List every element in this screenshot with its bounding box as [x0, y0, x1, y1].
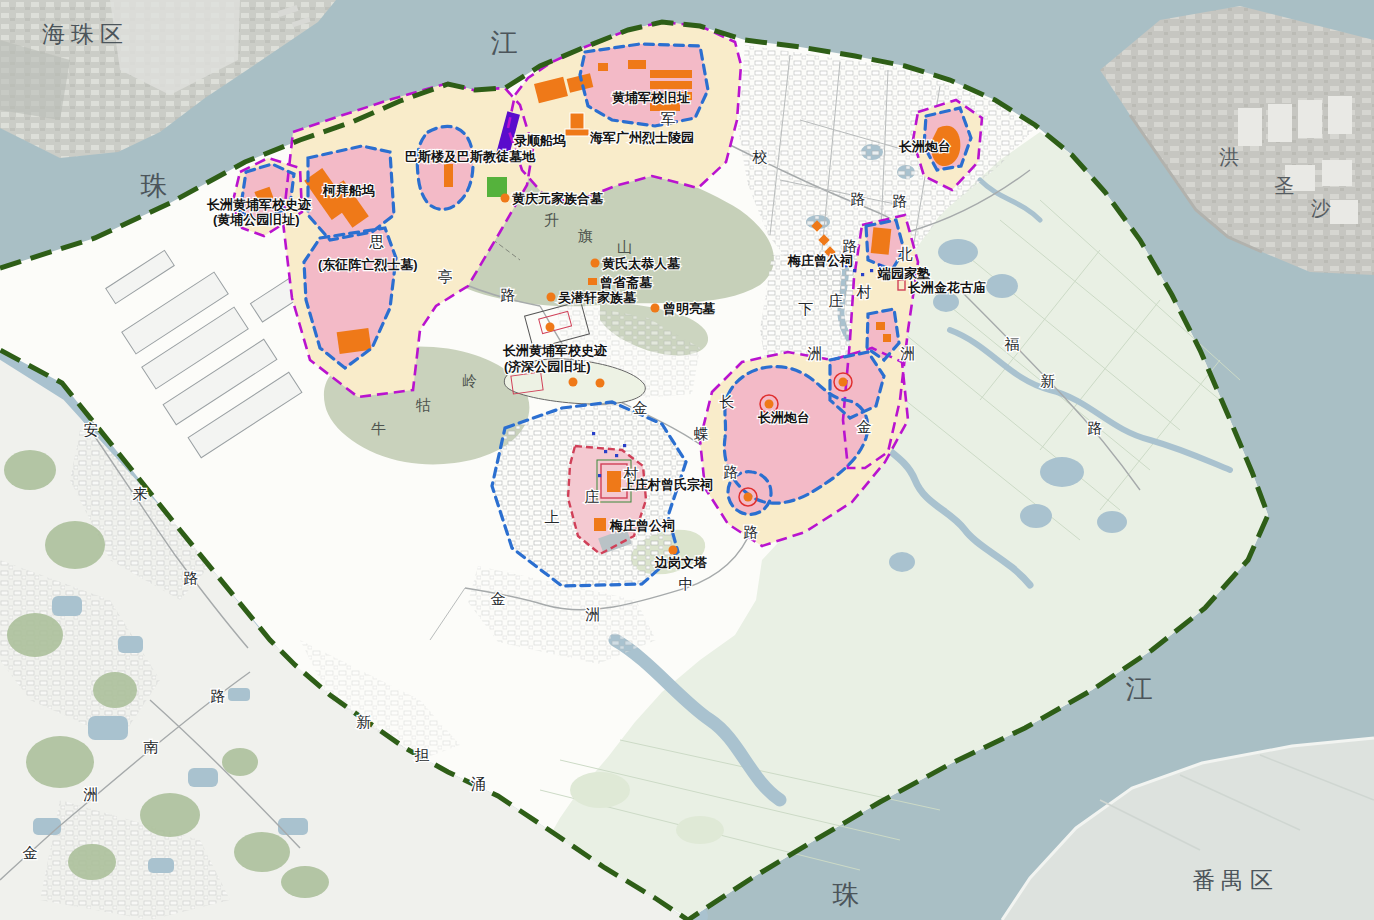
- road-label: 金: [23, 844, 38, 861]
- road-label: 路: [724, 463, 739, 480]
- road-label: 金: [491, 590, 506, 607]
- site-label: 梅庄曾公祠: [787, 253, 853, 268]
- site-label: 长洲金花古庙: [907, 280, 986, 295]
- road-label: 庄: [585, 488, 600, 505]
- road-label: 洲: [901, 344, 916, 361]
- road-label: 长: [720, 393, 735, 410]
- site-label: 黄埔军校旧址: [611, 90, 690, 105]
- water-label: 江: [491, 28, 520, 58]
- blue-feature-dot: [853, 269, 856, 272]
- heritage-site-dot: [569, 378, 578, 387]
- site-label: 长洲炮台: [898, 139, 951, 154]
- road-label: 亭: [438, 268, 453, 285]
- site-label: 黄氏太恭人墓: [601, 256, 681, 271]
- road-label: 金: [857, 418, 872, 435]
- district-label: 海珠区: [42, 21, 129, 47]
- site-label: 柯拜船坞: [322, 183, 375, 198]
- site-label: 录顺船坞: [513, 133, 566, 148]
- water-label: 珠: [141, 171, 170, 201]
- road-label: 北: [898, 245, 913, 262]
- road-label: 村: [856, 283, 872, 300]
- shoal-label: 沙: [1311, 197, 1331, 219]
- water-label: 江: [1126, 674, 1155, 704]
- road-label: 新: [1041, 372, 1056, 389]
- road-label: 中: [679, 575, 694, 592]
- road-label: 安: [84, 421, 99, 438]
- blue-feature-dot: [615, 454, 618, 457]
- road-label: 福: [1005, 335, 1020, 352]
- heritage-site-dot: [547, 293, 556, 302]
- hill-label: 牛: [371, 420, 387, 437]
- heritage-site-dot: [596, 379, 605, 388]
- road-label: 洲: [586, 605, 601, 622]
- road-label: 洲: [84, 785, 99, 802]
- heritage-site-dot: [591, 259, 600, 268]
- hill-label: 山: [617, 238, 633, 255]
- site-label: 巴斯楼及巴斯教徒墓地: [405, 149, 536, 164]
- site-label: 上庄村曾氏宗祠: [622, 477, 713, 492]
- hill-label: 岭: [462, 372, 478, 389]
- road-label: 校: [752, 148, 768, 165]
- site-label: 长洲黄埔军校史迹: [502, 343, 607, 358]
- site-label: 长洲炮台: [757, 410, 810, 425]
- road-label: 南: [144, 738, 159, 755]
- heritage-site-dot: [669, 546, 678, 555]
- site-label: (东征阵亡烈士墓): [318, 257, 418, 272]
- road-label: 庄: [829, 292, 844, 309]
- road-label: 新: [357, 713, 372, 730]
- road-label: 担: [415, 746, 430, 763]
- road-label: 涌: [471, 775, 486, 792]
- road-label: 思: [369, 233, 385, 250]
- site-label: 曾省斋墓: [600, 275, 653, 290]
- site-label: 黄庆元家族合墓: [511, 191, 604, 206]
- site-label: 边岗文塔: [654, 555, 708, 570]
- heritage-site-dot: [744, 493, 753, 502]
- site-label: 海军广州烈士陵园: [589, 130, 694, 145]
- shoal-label: 洪: [1219, 146, 1239, 168]
- road-label: 金: [633, 399, 648, 416]
- road-label: 路: [501, 286, 516, 303]
- map-canvas: 江珠江珠海珠区番禺区洪圣沙升旗山牛牯岭军校路路路北洲金下庄村洲思亭路长金蝶路路上…: [0, 0, 1374, 920]
- blue-feature-dot: [592, 432, 595, 435]
- road-label: 军: [661, 110, 676, 127]
- site-label: 长洲黄埔军校史迹: [206, 197, 311, 212]
- heritage-site-dot: [765, 400, 774, 409]
- site-label: (黄埔公园旧址): [213, 212, 300, 227]
- road-label: 路: [211, 687, 226, 704]
- heritage-site-dot: [839, 378, 848, 387]
- hill-label: 升: [544, 211, 560, 228]
- blue-feature-dot: [623, 444, 626, 447]
- heritage-site-dot: [546, 323, 555, 332]
- hill-label: 旗: [578, 227, 594, 244]
- site-label: 梅庄曾公祠: [609, 518, 675, 533]
- blue-feature-dot: [870, 269, 873, 272]
- heritage-site-square: [588, 278, 597, 285]
- road-label: 洲: [808, 344, 823, 361]
- road-label: 路: [184, 569, 199, 586]
- site-label: 端园家塾: [877, 266, 930, 281]
- heritage-site-dot: [651, 304, 660, 313]
- site-label: 吴潜轩家族墓: [557, 290, 637, 305]
- blue-feature-dot: [598, 474, 601, 477]
- shoal-label: 圣: [1274, 175, 1294, 197]
- blue-feature-dot: [604, 450, 607, 453]
- site-label: 曾明亮墓: [663, 301, 716, 316]
- road-label: 上: [545, 508, 560, 525]
- road-label: 蝶: [694, 425, 709, 442]
- road-label: 路: [851, 190, 866, 207]
- road-label: 路: [1088, 419, 1103, 436]
- road-label: 来: [133, 485, 148, 502]
- road-label: 路: [843, 237, 858, 254]
- road-label: 路: [744, 523, 759, 540]
- district-label: 番禺区: [1192, 867, 1279, 893]
- site-label: (济深公园旧址): [504, 359, 591, 374]
- planning-map: 江珠江珠海珠区番禺区洪圣沙升旗山牛牯岭军校路路路北洲金下庄村洲思亭路长金蝶路路上…: [0, 0, 1374, 920]
- water-label: 珠: [833, 880, 862, 910]
- hill-label: 牯: [415, 396, 432, 413]
- road-label: 路: [893, 192, 908, 209]
- heritage-site-dot: [501, 194, 510, 203]
- blue-feature-dot: [861, 273, 864, 276]
- road-label: 下: [799, 300, 814, 317]
